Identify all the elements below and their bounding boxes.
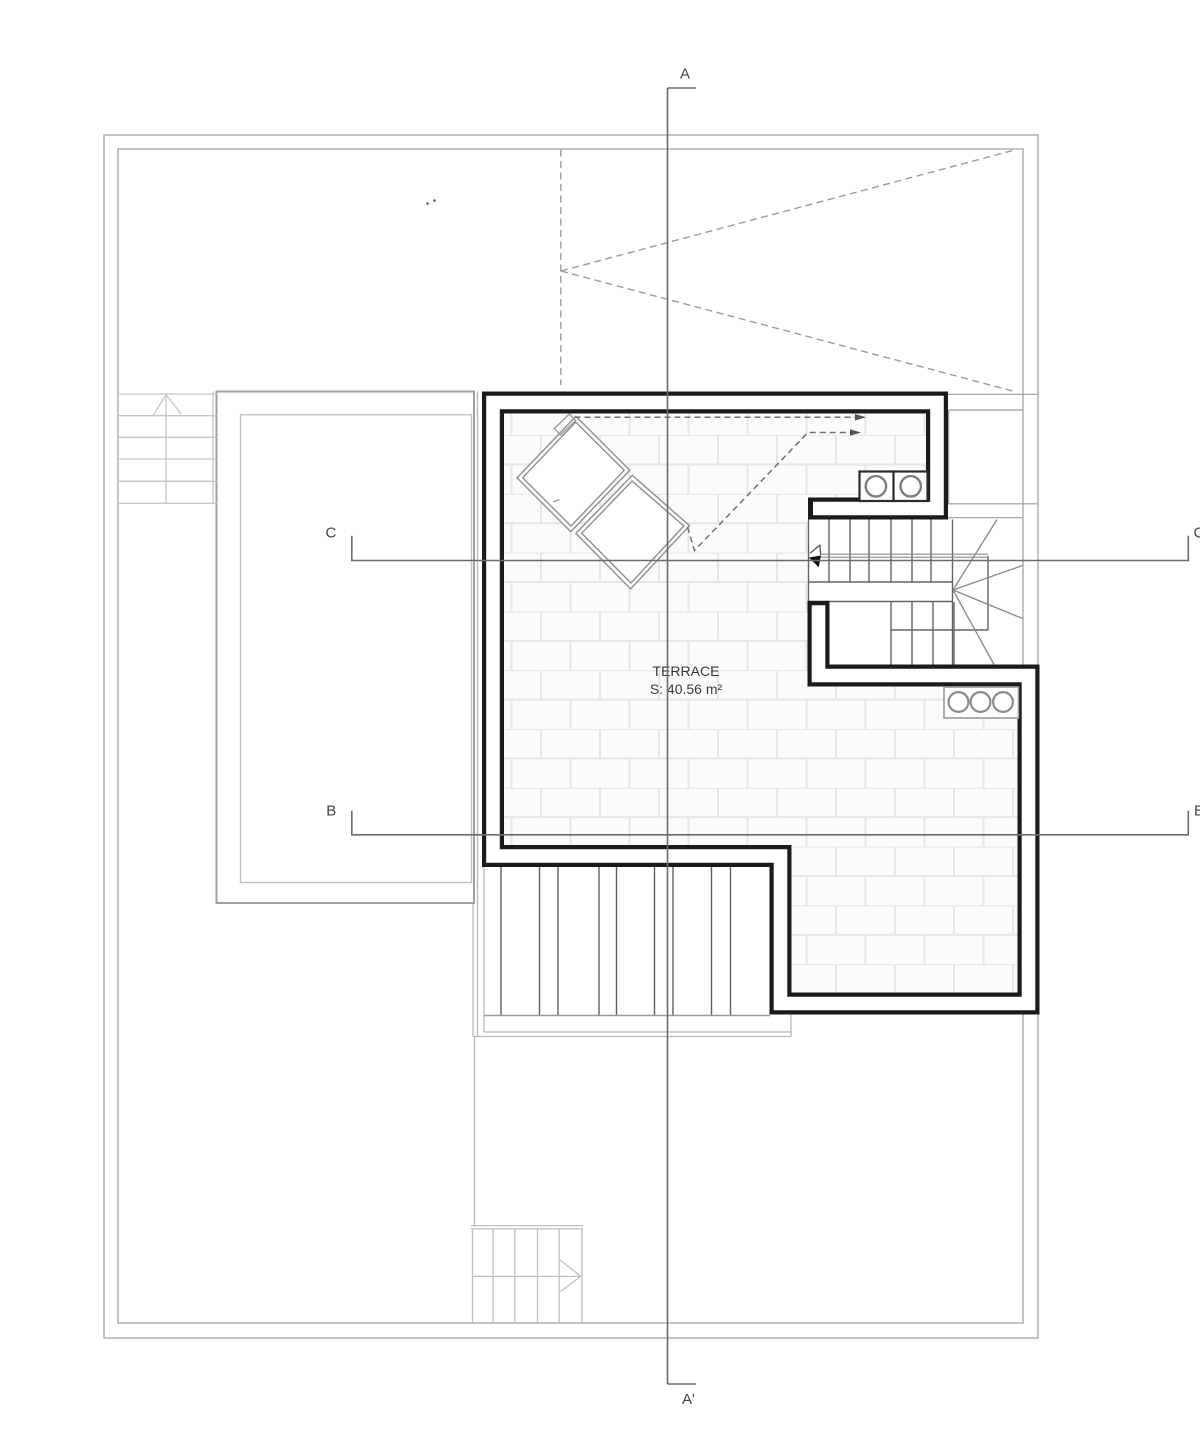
svg-text:B: B — [1194, 802, 1200, 819]
svg-text:C: C — [1194, 525, 1200, 542]
svg-text:A': A' — [682, 1391, 695, 1408]
svg-text:TERRACE: TERRACE — [653, 663, 720, 679]
svg-text:A: A — [680, 66, 690, 83]
svg-text:S: 40.56 m²: S: 40.56 m² — [650, 681, 723, 697]
svg-text:B: B — [326, 802, 336, 819]
svg-text:C: C — [326, 525, 337, 542]
